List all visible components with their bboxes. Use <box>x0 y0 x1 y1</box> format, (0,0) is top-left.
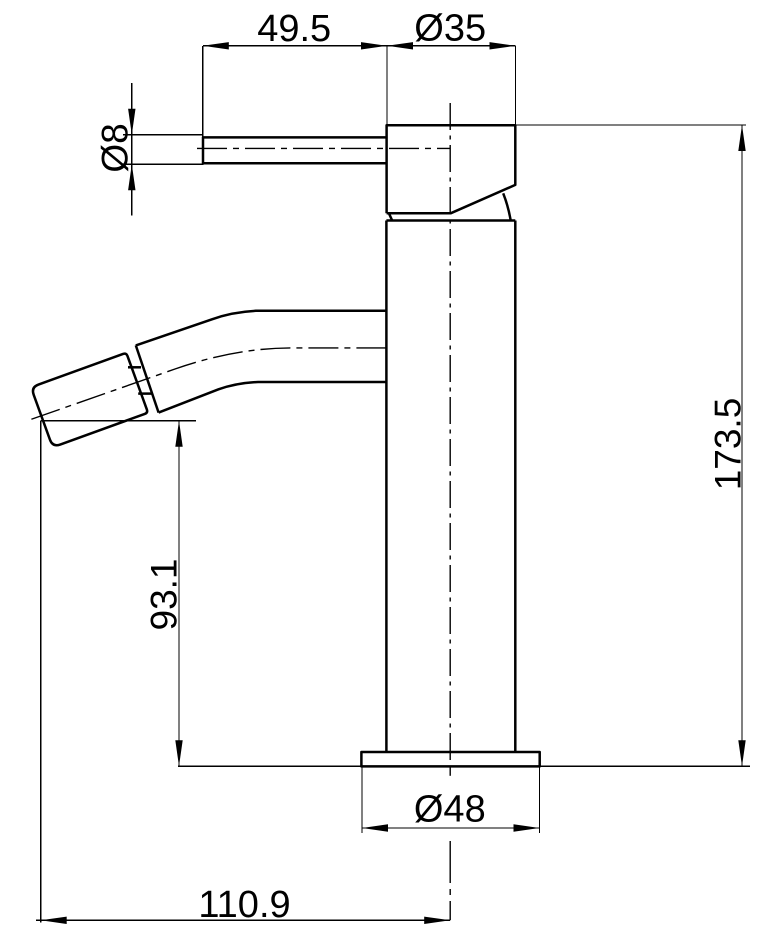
svg-text:110.9: 110.9 <box>198 884 290 926</box>
svg-text:173.5: 173.5 <box>708 398 749 491</box>
svg-text:Ø35: Ø35 <box>414 8 486 50</box>
svg-text:49.5: 49.5 <box>257 8 331 50</box>
svg-text:93.1: 93.1 <box>143 558 184 630</box>
svg-text:Ø48: Ø48 <box>414 789 486 831</box>
svg-text:Ø8: Ø8 <box>94 123 135 172</box>
